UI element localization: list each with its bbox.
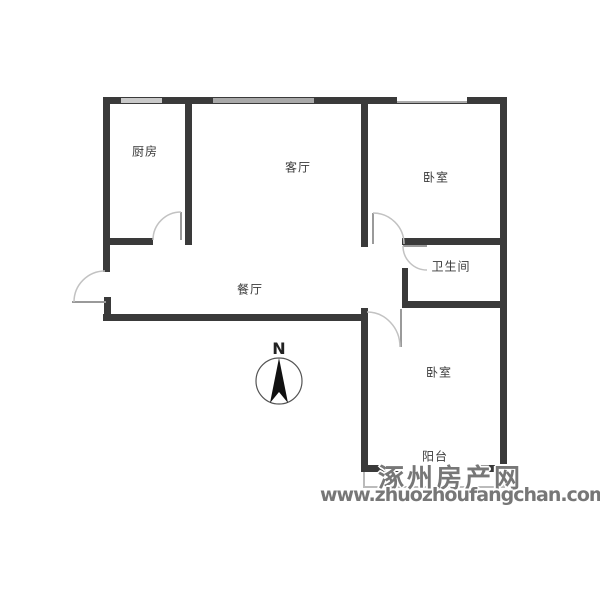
- north-arrow-icon: [270, 358, 288, 403]
- room-label-bedroom-top: 卧室: [423, 169, 449, 186]
- bathroom-door-arc: [403, 246, 427, 270]
- room-label-bathroom: 卫生间: [431, 258, 470, 275]
- room-label-dining: 餐厅: [237, 281, 263, 298]
- door-swings: [0, 0, 600, 600]
- room-label-living: 客厅: [285, 159, 311, 176]
- kitchen-door-arc: [153, 212, 181, 240]
- entrance-door-arc: [74, 271, 105, 302]
- bedroom-bottom-door-arc: [367, 312, 400, 347]
- compass: N: [250, 336, 308, 410]
- watermark-site-url: www.zhuozhoufangchan.com: [320, 484, 572, 506]
- room-label-bedroom-bottom: 卧室: [426, 364, 452, 381]
- bedroom-top-door-arc: [373, 213, 404, 244]
- compass-north-label: N: [272, 339, 285, 358]
- floor-plan: 厨房 客厅 卧室 餐厅 卫生间 卧室 阳台 N 涿州房产网 www.zhuozh…: [0, 0, 600, 600]
- room-label-kitchen: 厨房: [132, 143, 158, 160]
